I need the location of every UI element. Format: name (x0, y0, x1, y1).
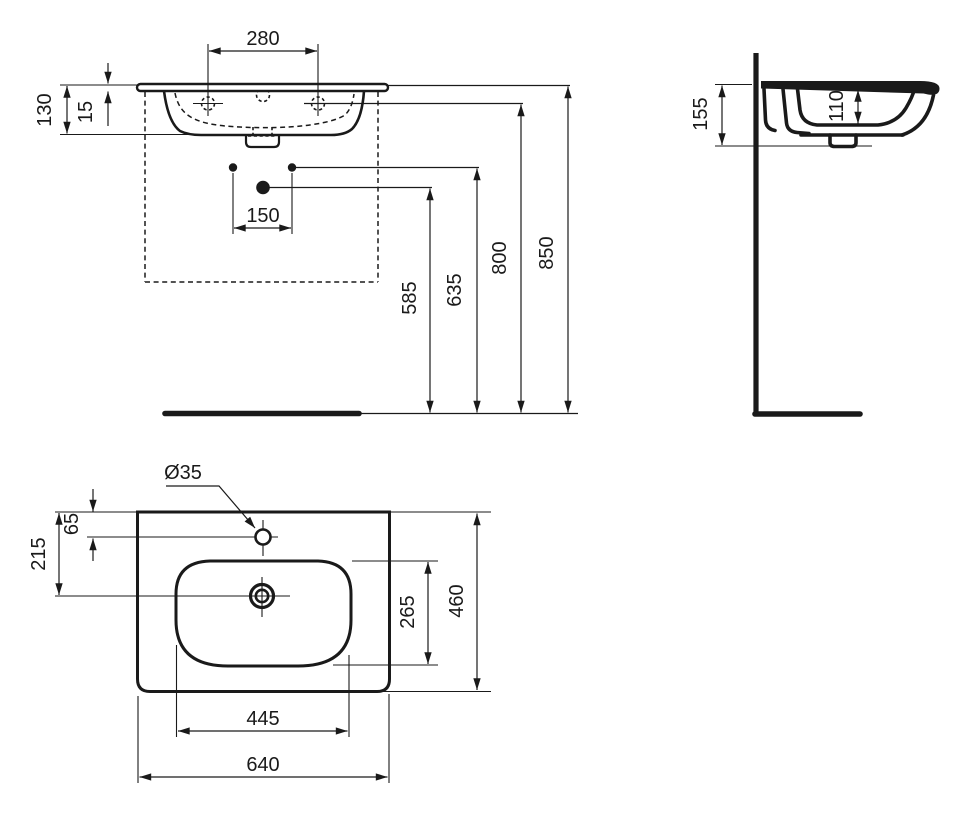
dim-label-265: 265 (397, 595, 419, 628)
supply-point-left (229, 163, 237, 171)
plan-faucet-hole (256, 530, 271, 545)
dim-label-460: 460 (446, 584, 468, 617)
basin-rim (137, 84, 388, 91)
dim-label-635: 635 (444, 273, 466, 306)
side-bowl-inner (798, 89, 915, 125)
dim-label-hole-diameter: Ø35 (164, 462, 202, 484)
basin-inner-bowl-dashed (175, 93, 354, 128)
side-front-outer (902, 95, 934, 135)
technical-drawing-page: 280 130 15 150 585 635 800 850 (0, 0, 957, 816)
side-back-profile-2 (783, 89, 809, 134)
dim-label-280: 280 (246, 28, 279, 50)
dim-label-130: 130 (34, 93, 56, 126)
dim-label-15: 15 (75, 101, 97, 123)
dim-label-850: 850 (536, 236, 558, 269)
dim-label-800: 800 (489, 241, 511, 274)
side-back-profile-1 (764, 89, 775, 131)
dim-label-110: 110 (826, 90, 848, 122)
washbasin-drawing: 280 130 15 150 585 635 800 850 (0, 0, 957, 816)
dim-label-155: 155 (690, 97, 712, 130)
dim-label-215: 215 (28, 537, 50, 570)
dim-label-150: 150 (246, 205, 279, 227)
dim-label-640: 640 (246, 754, 279, 776)
side-view: 155 110 (690, 53, 940, 414)
dim-label-585: 585 (399, 281, 421, 314)
plan-view: Ø35 65 215 265 460 445 640 (28, 462, 491, 783)
front-view: 280 130 15 150 585 635 800 850 (34, 28, 578, 414)
dim-label-445: 445 (246, 708, 279, 730)
dim-label-65: 65 (61, 513, 83, 535)
